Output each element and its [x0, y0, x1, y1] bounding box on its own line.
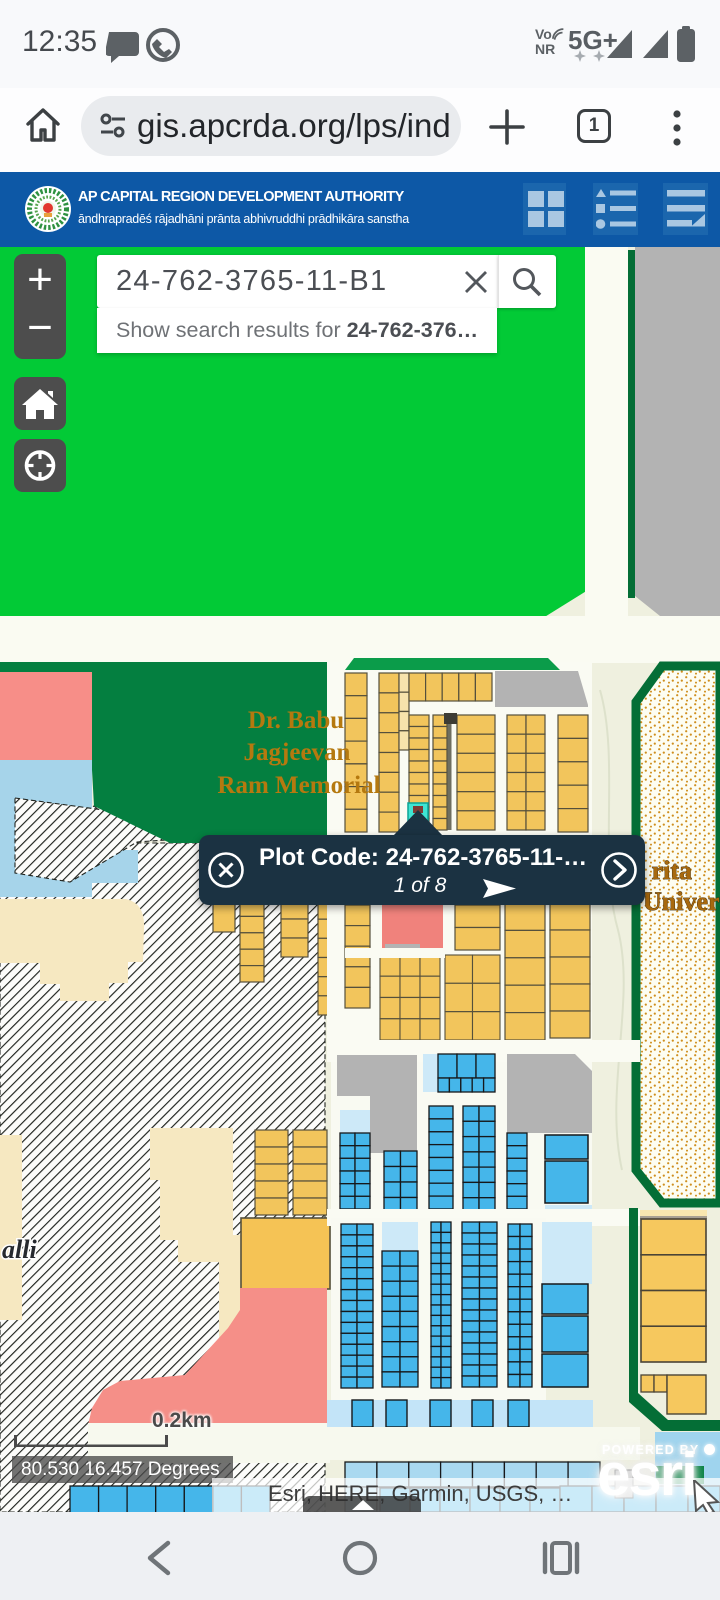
svg-text:Jagjeevan: Jagjeevan — [244, 739, 351, 766]
svg-text:Universit: Universit — [643, 887, 720, 916]
svg-text:Ram Memorial: Ram Memorial — [217, 772, 380, 799]
svg-text:rita: rita — [652, 856, 692, 885]
svg-text:Dr. Babu: Dr. Babu — [248, 707, 344, 734]
svg-text:alli: alli — [2, 1235, 37, 1264]
